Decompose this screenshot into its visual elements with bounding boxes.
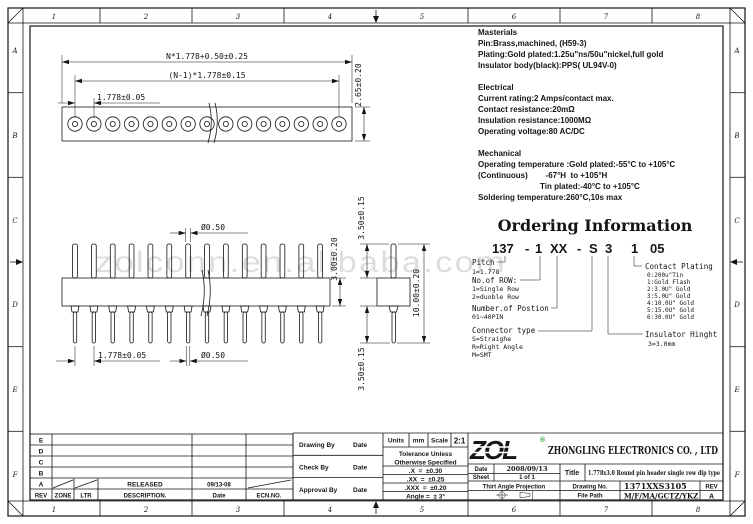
rev-header: ZONE xyxy=(55,494,72,500)
rev-row-letter: D xyxy=(39,449,44,456)
rev-header: DESCRIPTION. xyxy=(124,494,167,500)
materials-line: Plating:Gold plated:1.25u"ns/50u"nickel,… xyxy=(478,50,664,59)
zone-row: C xyxy=(734,217,740,225)
ordering-information: Ordering Information 137 - 1 XX - S 3 1 … xyxy=(472,216,717,359)
units-value: mm xyxy=(413,438,425,445)
zone-row: D xyxy=(733,301,740,309)
plating-value: 5:15.0U" Gold xyxy=(647,307,694,314)
part-seg: 1 xyxy=(535,241,542,256)
drawing-no-label: Drawing No. xyxy=(572,484,607,490)
materials-line: Insulator body(black):PPS( UL94V-0) xyxy=(478,61,617,70)
ordering-title: Ordering Information xyxy=(498,216,693,235)
rev-row-letter: C xyxy=(39,460,44,467)
electrical-title: Electrical xyxy=(478,83,514,92)
tolerance-row: Angle = ± 3° xyxy=(406,492,445,500)
pitch-label: Pitch xyxy=(472,258,495,267)
title-value: 1.778x3.0 Round pin header single row di… xyxy=(588,469,720,477)
tolerance-row: .XXX = ±0.20 xyxy=(404,485,446,492)
dim-top-overall: N*1.778+0.50±0.25 xyxy=(166,52,248,61)
zone-row: F xyxy=(734,471,741,479)
zone-col: 4 xyxy=(327,506,332,514)
watermark-text: zolconn.en.alibaba.com xyxy=(95,246,507,279)
part-seg: XX xyxy=(550,241,568,256)
mechanical-line: Operating temperature :Gold plated:-55°C… xyxy=(478,160,676,169)
company-name: ZHONGLING ELECTRONICS CO. , LTD xyxy=(548,444,718,457)
dim-top-height: 2.65±0.20 xyxy=(354,63,363,107)
logo-text: ZOL xyxy=(469,435,517,465)
electrical-line: Insulation resistance:1000MΩ xyxy=(478,116,592,125)
rev-value: A xyxy=(709,493,714,500)
plating-value: 2:3.0U" Gold xyxy=(647,286,691,293)
rev-header: Date xyxy=(212,494,226,500)
row-label: No.of ROW: xyxy=(472,276,517,285)
zone-row: F xyxy=(12,471,19,479)
rev-row-letter: A xyxy=(39,482,44,489)
plating-value: 6:30.0U" Gold xyxy=(647,314,694,321)
electrical-line: Contact resistance:20mΩ xyxy=(478,105,575,114)
zone-col: 5 xyxy=(420,13,425,21)
zone-col: 6 xyxy=(512,506,517,514)
electrical-line: Current rating:2 Amps/contact max. xyxy=(478,94,614,103)
type-value: R=Right Angle xyxy=(472,343,523,351)
third-angle-projection-symbol xyxy=(496,490,533,501)
electrical-spec: Electrical Current rating:2 Amps/contact… xyxy=(478,83,614,136)
zone-col: 3 xyxy=(236,506,241,514)
mechanical-line: Soldering temperature:260°C,10s max xyxy=(478,193,623,202)
electrical-line: Operating voltage:80 AC/DC xyxy=(478,127,585,136)
tolerance-note: Tolerance Unless xyxy=(399,451,453,458)
materials-title: Masterials xyxy=(478,28,518,37)
zone-col: 2 xyxy=(143,13,149,21)
zone-col: 2 xyxy=(143,506,149,514)
plating-value: 3:5.0U" Gold xyxy=(647,293,691,300)
position-value: 01~40PIN xyxy=(472,313,503,321)
zone-col: 1 xyxy=(52,506,56,514)
row-value: 1=Single Row xyxy=(472,285,519,293)
side-view: 3.50±0.15 10.00±0.20 3.50±0.15 xyxy=(357,196,430,391)
drawing-by-label: Drawing By xyxy=(299,442,335,449)
position-label: Number.of Postion xyxy=(472,304,549,313)
rev-label: REV xyxy=(705,484,717,490)
part-seg: - xyxy=(577,241,581,256)
tolerance-row: .X = ±0.30 xyxy=(409,468,443,475)
file-path-label: File Path xyxy=(577,494,602,500)
title-label: Title xyxy=(565,470,579,477)
rev-header: REV xyxy=(35,494,47,500)
rev-row-letter: E xyxy=(39,438,44,445)
sheet-label: Sheet xyxy=(473,475,489,481)
mechanical-line: (Continuous) -67°H to +105°H xyxy=(478,171,608,180)
zone-col: 5 xyxy=(420,506,425,514)
mechanical-spec: Mechanical Operating temperature :Gold p… xyxy=(478,149,676,202)
scale-label: Scale xyxy=(431,438,448,445)
materials-spec: Masterials Pin:Brass,machined, (H59-3) P… xyxy=(478,28,664,70)
pitch-value: 1=1.778 xyxy=(472,268,499,276)
drawing-no-value: 1371XXS3105 xyxy=(624,481,687,491)
materials-line: Pin:Brass,machined, (H59-3) xyxy=(478,39,587,48)
dim-body-height: 3.00±0.20 xyxy=(330,237,339,281)
part-seg: 137 xyxy=(492,241,514,256)
tolerance-row: .XX = ±0.25 xyxy=(407,476,445,483)
part-seg: 05 xyxy=(650,241,664,256)
engineering-drawing: zolconn.en.alibaba.com 1 2 3 4 5 6 7 8 1 xyxy=(0,0,753,524)
rev-header: ECN.NO. xyxy=(256,494,281,500)
released-date: 09/13-08 xyxy=(207,483,231,489)
zone-row: E xyxy=(11,386,17,394)
title-block: E D C B A RELEASED 09/13-08 REV ZONE LTR… xyxy=(30,433,723,500)
part-seg: - xyxy=(525,241,529,256)
sheet-value: 1 of 1 xyxy=(519,475,535,481)
date-value: 2008/09/13 xyxy=(507,465,548,473)
type-value: S=Straighe xyxy=(472,335,511,343)
insulator-label: Insulator Hinght xyxy=(645,330,717,339)
plating-value: 4:10.0U" Gold xyxy=(647,300,694,307)
approval-by-label: Approval By xyxy=(299,487,338,494)
units-label: Units xyxy=(388,438,405,445)
row-value: 2=duoble Row xyxy=(472,293,519,301)
part-seg: S xyxy=(589,241,598,256)
zone-row: D xyxy=(11,301,18,309)
dim-pin-dia-bottom: Ø0.50 xyxy=(201,350,225,360)
zone-col: 7 xyxy=(604,13,609,21)
zone-col: 6 xyxy=(512,13,517,21)
plating-value: 0:200u"Tin xyxy=(647,272,684,279)
dim-pin-dia-top: Ø0.50 xyxy=(201,222,225,232)
type-label: Connector type xyxy=(472,326,536,335)
document-block: ZOL ® ZHONGLING ELECTRONICS CO. , LTD Da… xyxy=(468,435,723,500)
zone-col: 4 xyxy=(327,13,332,21)
zone-row: B xyxy=(733,132,739,140)
date-label: Date xyxy=(474,467,488,473)
file-path-value: M/F/MA/GCTZ/YKZ xyxy=(624,491,698,500)
date-label: Date xyxy=(353,442,367,449)
zone-col: 3 xyxy=(236,13,241,21)
dim-side-top-pin: 3.50±0.15 xyxy=(357,196,366,240)
dim-front-pitch: 1.778±0.05 xyxy=(98,351,146,360)
front-view: Ø0.50 1.778±0.05 Ø0.50 3.00±0.20 xyxy=(56,222,346,366)
zone-row: B xyxy=(11,132,17,140)
zone-col: 8 xyxy=(696,13,701,21)
zone-col: 7 xyxy=(604,506,609,514)
zone-col: 8 xyxy=(696,506,701,514)
zone-row: E xyxy=(733,386,739,394)
mechanical-title: Mechanical xyxy=(478,149,521,158)
released-label: RELEASED xyxy=(127,482,163,489)
top-view: N*1.778+0.50±0.25 (N-1)*1.778±0.15 1.778… xyxy=(58,52,370,143)
scale-value: 2:1 xyxy=(454,437,466,446)
rev-row-letter: B xyxy=(39,471,44,478)
part-seg: 3 xyxy=(605,241,612,256)
type-value: M=SMT xyxy=(472,351,492,359)
dim-side-bottom-pin: 3.50±0.15 xyxy=(357,347,366,391)
date-label: Date xyxy=(353,487,367,494)
insulator-value: 3=3.0mm xyxy=(648,340,675,348)
plating-label: Contact Plating xyxy=(645,262,713,271)
company-logo: ZOL ® xyxy=(469,435,546,465)
zone-row: C xyxy=(12,217,18,225)
tolerance-note: Otherwise Specified xyxy=(394,460,456,467)
date-label: Date xyxy=(353,465,367,472)
zone-row: A xyxy=(733,47,739,55)
zone-row: A xyxy=(11,47,17,55)
plating-value: 1:Gold Flash xyxy=(647,279,691,286)
part-seg: 1 xyxy=(631,241,638,256)
projection-label: Thirt Angle Projection xyxy=(483,484,546,490)
mechanical-line: Tin plated:-40°C to +105°C xyxy=(540,182,640,191)
rev-header: LTR xyxy=(80,494,92,500)
dim-top-pitch: 1.778±0.05 xyxy=(97,93,145,102)
drawing-sheet: zolconn.en.alibaba.com 1 2 3 4 5 6 7 8 1 xyxy=(0,0,753,524)
dim-side-overall: 10.00±0.20 xyxy=(412,269,421,317)
dim-top-centers: (N-1)*1.778±0.15 xyxy=(168,71,245,80)
check-by-label: Check By xyxy=(299,465,329,472)
part-number: 137 - 1 XX - S 3 1 05 xyxy=(492,241,664,256)
revision-table: E D C B A RELEASED 09/13-08 REV ZONE LTR… xyxy=(30,434,293,500)
zone-col: 1 xyxy=(52,13,56,21)
registered-mark: ® xyxy=(540,436,546,444)
